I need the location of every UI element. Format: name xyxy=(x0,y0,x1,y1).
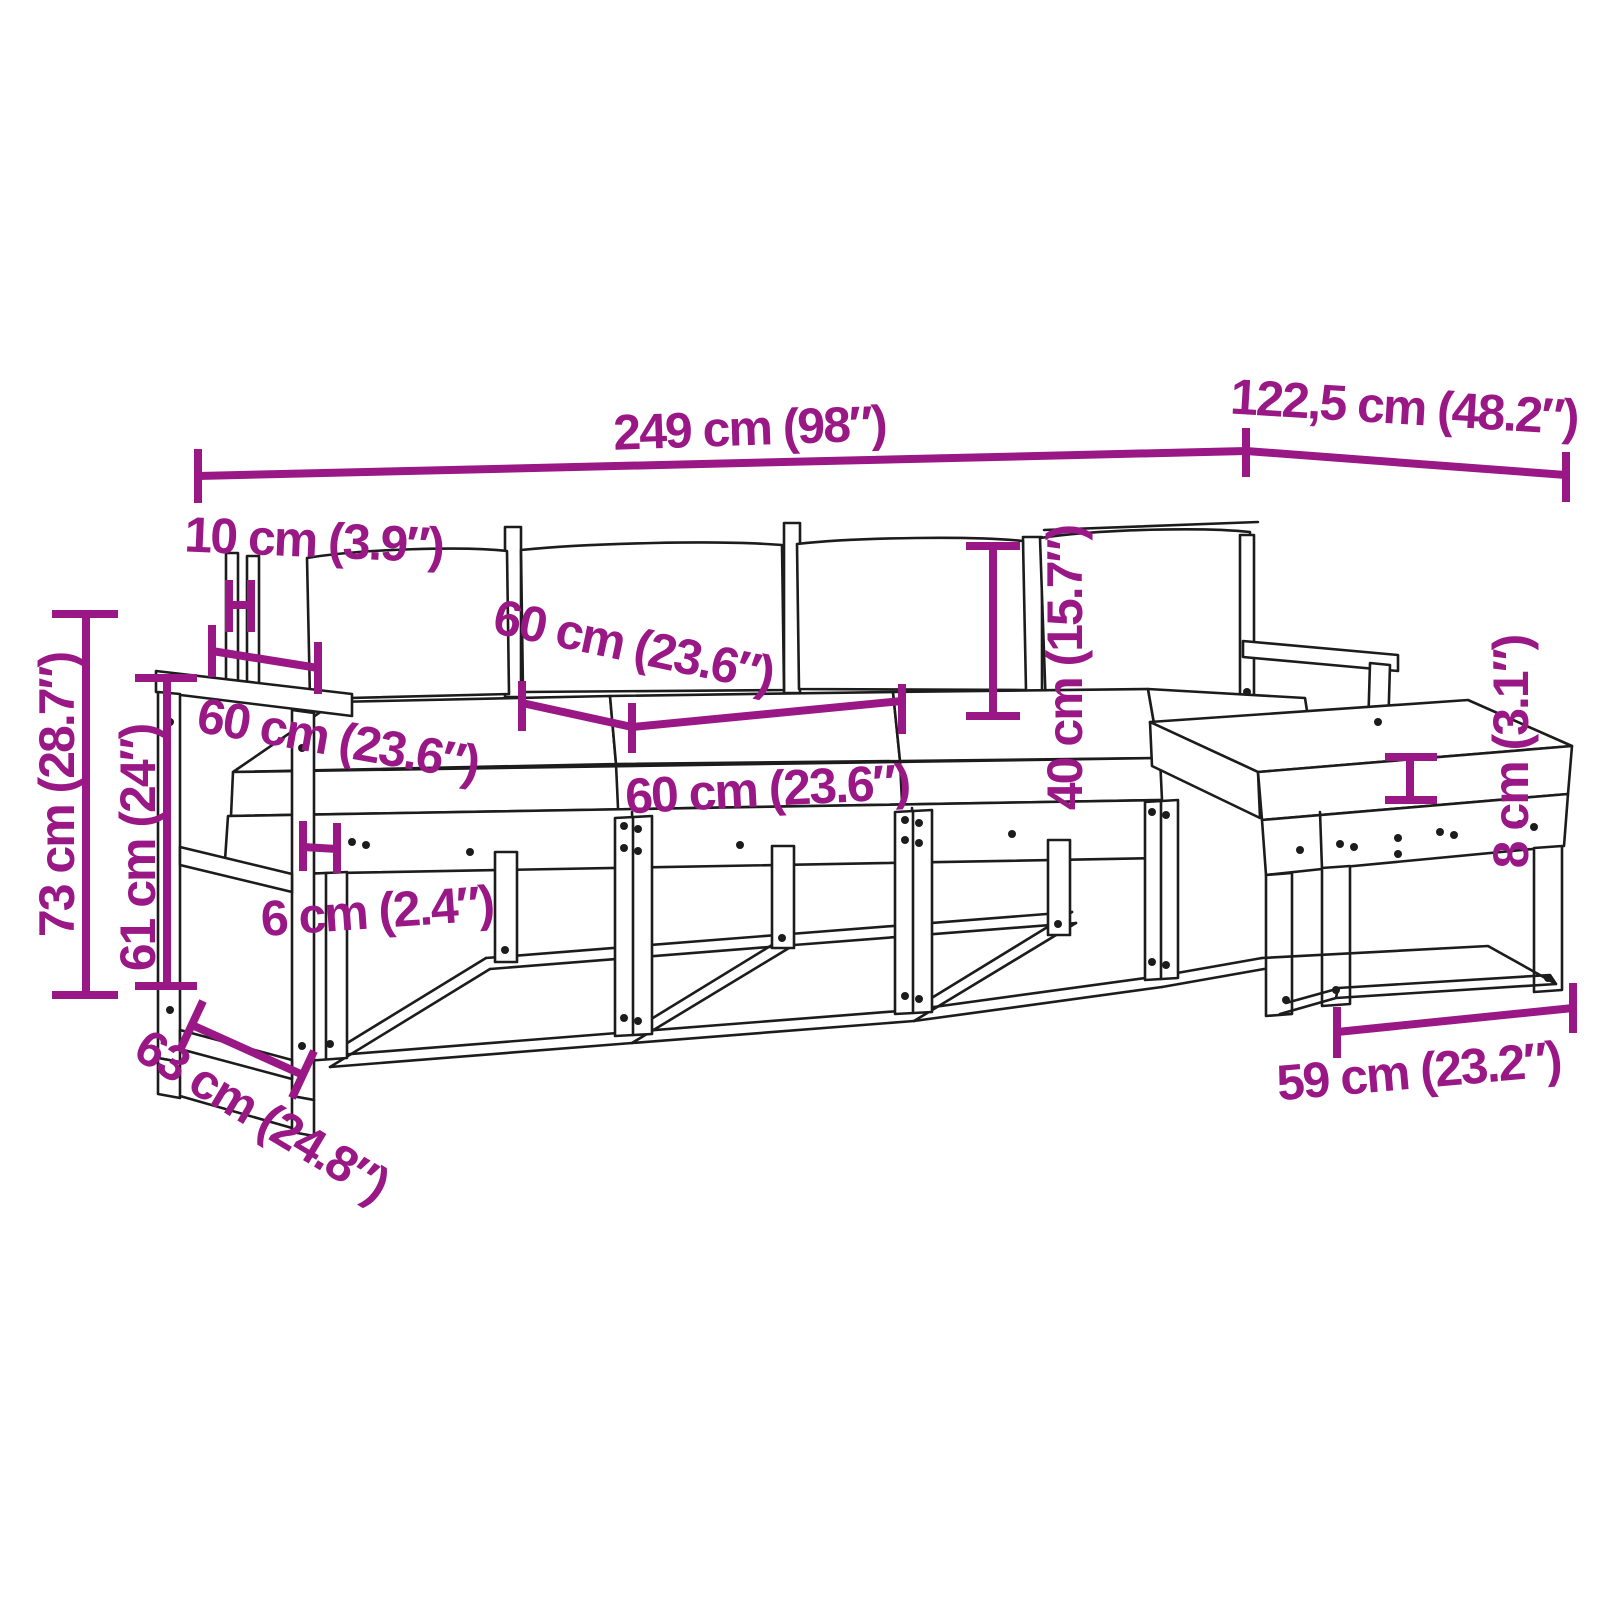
dim-armrest-height-label: 61 cm (24″) xyxy=(110,724,166,971)
dim-cushion-thickness-label: 8 cm (3.1″) xyxy=(1483,635,1539,868)
dim-post-width-line xyxy=(229,580,251,632)
dim-post-width-label: 10 cm (3.9″) xyxy=(183,506,444,573)
stool-leg xyxy=(1322,866,1350,1006)
sofa-line-drawing xyxy=(156,522,1572,1136)
dim-depth-left-label: 63 cm (24.8″) xyxy=(126,1018,399,1213)
furniture-dimension-diagram: 249 cm (98″) 122,5 cm (48.2″) 10 cm (3.9… xyxy=(0,0,1600,1600)
backrest-cushions xyxy=(307,529,1253,710)
dim-overall-height-label: 73 cm (28.7″) xyxy=(29,653,85,938)
stool-leg xyxy=(1266,873,1292,1016)
seat-cushion-top xyxy=(893,689,1160,761)
dim-stool-width-label: 59 cm (23.2″) xyxy=(1275,1031,1563,1112)
dim-depth-right-line xyxy=(1246,451,1566,502)
dimension-diagram-page: 249 cm (98″) 122,5 cm (48.2″) 10 cm (3.9… xyxy=(0,0,1600,1600)
dim-depth-right-label: 122,5 cm (48.2″) xyxy=(1229,368,1580,445)
dim-overall-width-label: 249 cm (98″) xyxy=(612,395,886,460)
stool-floor-frame xyxy=(1262,946,1556,1014)
dim-backrest-height-label: 40 cm (15.7″) xyxy=(1037,526,1093,811)
